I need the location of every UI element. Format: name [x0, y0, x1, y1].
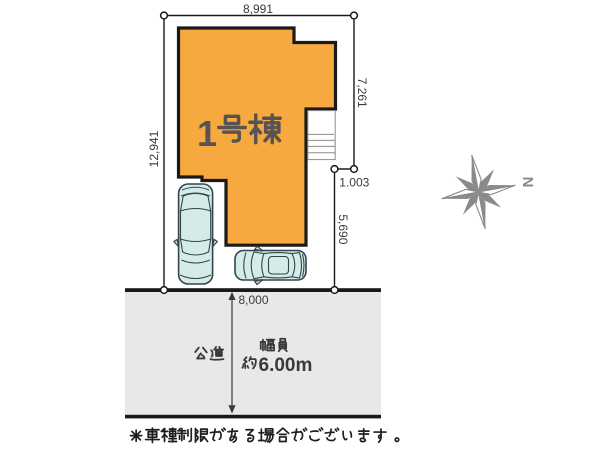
svg-text:8,000: 8,000 — [239, 293, 269, 307]
svg-text:8,991: 8,991 — [243, 2, 273, 16]
svg-text:6.00m: 6.00m — [259, 355, 313, 376]
svg-text:12,941: 12,941 — [147, 130, 161, 167]
svg-text:5,690: 5,690 — [336, 214, 350, 244]
svg-text:1: 1 — [197, 113, 217, 154]
svg-text:1.003: 1.003 — [339, 176, 369, 190]
svg-text:N: N — [519, 177, 536, 188]
svg-text:7,261: 7,261 — [355, 78, 369, 108]
